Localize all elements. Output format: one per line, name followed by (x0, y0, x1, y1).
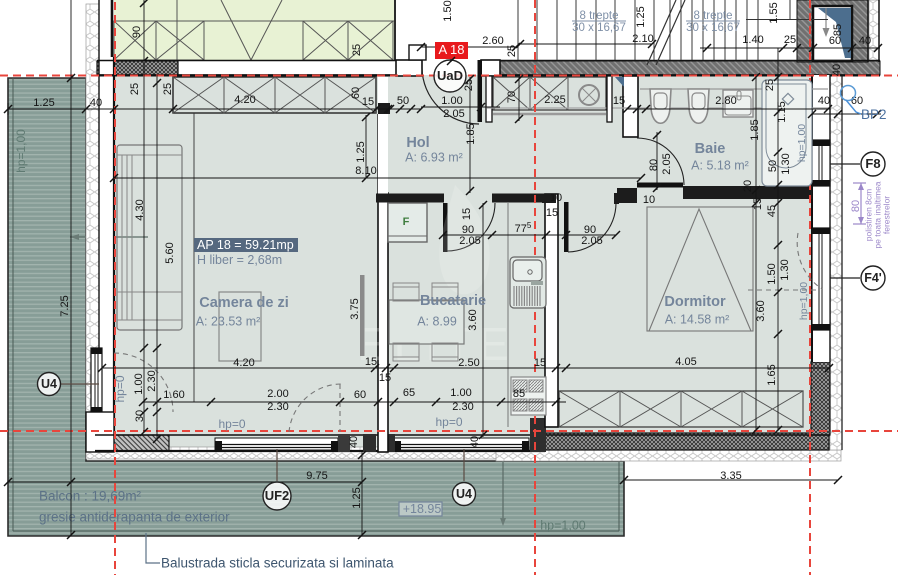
svg-text:85: 85 (513, 388, 525, 400)
svg-text:20: 20 (742, 180, 754, 192)
svg-text:40: 40 (859, 35, 871, 47)
svg-text:70: 70 (506, 91, 518, 103)
svg-text:hp=0: hp=0 (218, 417, 245, 431)
svg-text:10: 10 (550, 192, 562, 204)
svg-text:F4': F4' (864, 271, 882, 285)
svg-text:2.80: 2.80 (715, 95, 736, 107)
svg-text:2.05: 2.05 (661, 153, 673, 174)
svg-text:2.05: 2.05 (581, 235, 602, 247)
svg-text:60: 60 (851, 95, 863, 107)
svg-text:1.55: 1.55 (768, 2, 780, 23)
svg-text:2.25: 2.25 (544, 94, 565, 106)
svg-text:1.25: 1.25 (33, 97, 54, 109)
svg-text:1.25: 1.25 (351, 487, 363, 508)
svg-text:2.30: 2.30 (146, 370, 158, 391)
svg-text:3.75: 3.75 (349, 298, 361, 319)
svg-text:A 18: A 18 (438, 42, 464, 57)
svg-text:7.25: 7.25 (59, 295, 71, 316)
svg-text:50: 50 (397, 95, 409, 107)
svg-text:hp=1,00: hp=1,00 (796, 124, 808, 162)
svg-text:15: 15 (534, 357, 546, 369)
svg-text:1.25: 1.25 (355, 141, 367, 162)
svg-text:1.60: 1.60 (163, 389, 184, 401)
svg-text:2.10: 2.10 (632, 33, 653, 45)
svg-text:8 trepte: 8 trepte (580, 10, 619, 22)
svg-text:2.30: 2.30 (267, 401, 288, 413)
svg-text:80: 80 (850, 200, 862, 212)
svg-text:1.50: 1.50 (442, 0, 454, 21)
svg-text:H liber = 2,68m: H liber = 2,68m (197, 253, 282, 267)
svg-text:90: 90 (131, 26, 143, 38)
svg-text:hp=1,00: hp=1,00 (540, 518, 586, 532)
svg-text:2.05: 2.05 (459, 235, 480, 247)
svg-text:40: 40 (90, 97, 102, 109)
svg-text:60: 60 (354, 389, 366, 401)
svg-text:Bucatarie: Bucatarie (420, 293, 486, 309)
svg-text:25: 25 (162, 83, 174, 95)
svg-text:85: 85 (832, 24, 844, 36)
svg-text:1.00: 1.00 (133, 373, 145, 394)
svg-text:1.25: 1.25 (635, 6, 647, 27)
svg-text:1.65: 1.65 (766, 364, 778, 385)
svg-text:U4: U4 (456, 487, 472, 501)
svg-text:15: 15 (461, 208, 473, 220)
svg-text:40: 40 (469, 436, 481, 448)
svg-text:1.15: 1.15 (776, 101, 788, 122)
svg-text:UaD: UaD (437, 68, 463, 83)
svg-text:A: 8.99: A: 8.99 (417, 314, 457, 328)
svg-text:hp=0: hp=0 (113, 375, 127, 402)
svg-text:65: 65 (403, 387, 415, 399)
svg-text:2.05: 2.05 (443, 108, 464, 120)
svg-text:hp=1,00: hp=1,00 (798, 282, 810, 320)
svg-text:15: 15 (613, 95, 625, 107)
svg-text:F8: F8 (865, 156, 880, 171)
svg-text:UF2: UF2 (265, 488, 290, 503)
svg-text:8.10: 8.10 (355, 165, 376, 177)
svg-text:Balcon : 19,69m²: Balcon : 19,69m² (39, 489, 142, 504)
svg-text:3.60: 3.60 (755, 300, 767, 321)
svg-text:1.50: 1.50 (766, 263, 778, 284)
svg-text:1.30: 1.30 (780, 153, 792, 174)
svg-text:15: 15 (379, 372, 391, 384)
svg-text:A: 14.58 m²: A: 14.58 m² (665, 312, 730, 326)
svg-text:A: 5.18 m²: A: 5.18 m² (691, 158, 749, 172)
svg-text:25: 25 (764, 79, 776, 91)
svg-text:4.30: 4.30 (134, 199, 146, 220)
svg-text:1.85: 1.85 (749, 119, 761, 140)
svg-text:Camera de zi: Camera de zi (199, 295, 288, 311)
svg-text:40: 40 (818, 95, 830, 107)
svg-text:+18.95: +18.95 (403, 502, 442, 516)
svg-text:25: 25 (506, 45, 518, 57)
svg-text:ferestrelor: ferestrelor (881, 196, 891, 234)
svg-text:Baie: Baie (695, 141, 726, 157)
svg-text:40: 40 (348, 436, 360, 448)
svg-text:80: 80 (648, 159, 660, 171)
svg-text:1.00: 1.00 (450, 387, 471, 399)
svg-text:4.20: 4.20 (234, 94, 255, 106)
svg-text:hp=1,00: hp=1,00 (14, 129, 28, 173)
svg-text:Dormitor: Dormitor (664, 294, 726, 310)
svg-text:2.50: 2.50 (458, 357, 479, 369)
svg-text:1.40: 1.40 (742, 34, 763, 46)
svg-text:10: 10 (643, 194, 655, 206)
svg-text:2.60: 2.60 (482, 35, 503, 47)
svg-text:hp=0: hp=0 (435, 415, 462, 429)
svg-text:15: 15 (752, 198, 764, 210)
svg-text:40: 40 (831, 64, 843, 76)
svg-text:BP2: BP2 (861, 107, 887, 122)
svg-text:15: 15 (365, 356, 377, 368)
svg-text:25: 25 (351, 44, 363, 56)
svg-text:3.35: 3.35 (720, 470, 741, 482)
svg-text:Hol: Hol (406, 135, 429, 151)
svg-text:F: F (403, 216, 410, 228)
svg-text:U4: U4 (41, 377, 57, 391)
svg-text:15: 15 (546, 207, 558, 219)
svg-text:AP 18 = 59.21mp: AP 18 = 59.21mp (197, 238, 294, 252)
svg-text:30 x 16,67: 30 x 16,67 (572, 22, 626, 34)
svg-text:25: 25 (784, 34, 796, 46)
svg-text:4.20: 4.20 (233, 357, 254, 369)
svg-text:A: 6.93 m²: A: 6.93 m² (405, 150, 463, 164)
svg-text:Balustrada sticla securizata s: Balustrada sticla securizata si laminata (161, 556, 394, 571)
svg-text:15: 15 (362, 96, 374, 108)
svg-text:1.30: 1.30 (779, 259, 791, 280)
svg-text:5.60: 5.60 (164, 242, 176, 263)
svg-text:3.60: 3.60 (467, 309, 479, 330)
svg-text:A: 23.53 m²: A: 23.53 m² (196, 314, 261, 328)
svg-text:30: 30 (134, 410, 146, 422)
svg-text:9.75: 9.75 (306, 470, 327, 482)
svg-text:50: 50 (767, 160, 779, 172)
svg-text:4.05: 4.05 (675, 356, 696, 368)
svg-text:2.30: 2.30 (452, 401, 473, 413)
svg-text:1.00: 1.00 (441, 95, 462, 107)
svg-text:gresie antiderapanta de exteri: gresie antiderapanta de exterior (39, 510, 230, 525)
svg-text:25: 25 (129, 83, 141, 95)
svg-text:1.85: 1.85 (465, 123, 477, 144)
svg-text:8 trepte: 8 trepte (694, 10, 733, 22)
svg-text:60: 60 (350, 87, 362, 99)
svg-text:2.00: 2.00 (267, 388, 288, 400)
svg-text:30 x 16,67: 30 x 16,67 (686, 22, 740, 34)
svg-text:45: 45 (766, 205, 778, 217)
